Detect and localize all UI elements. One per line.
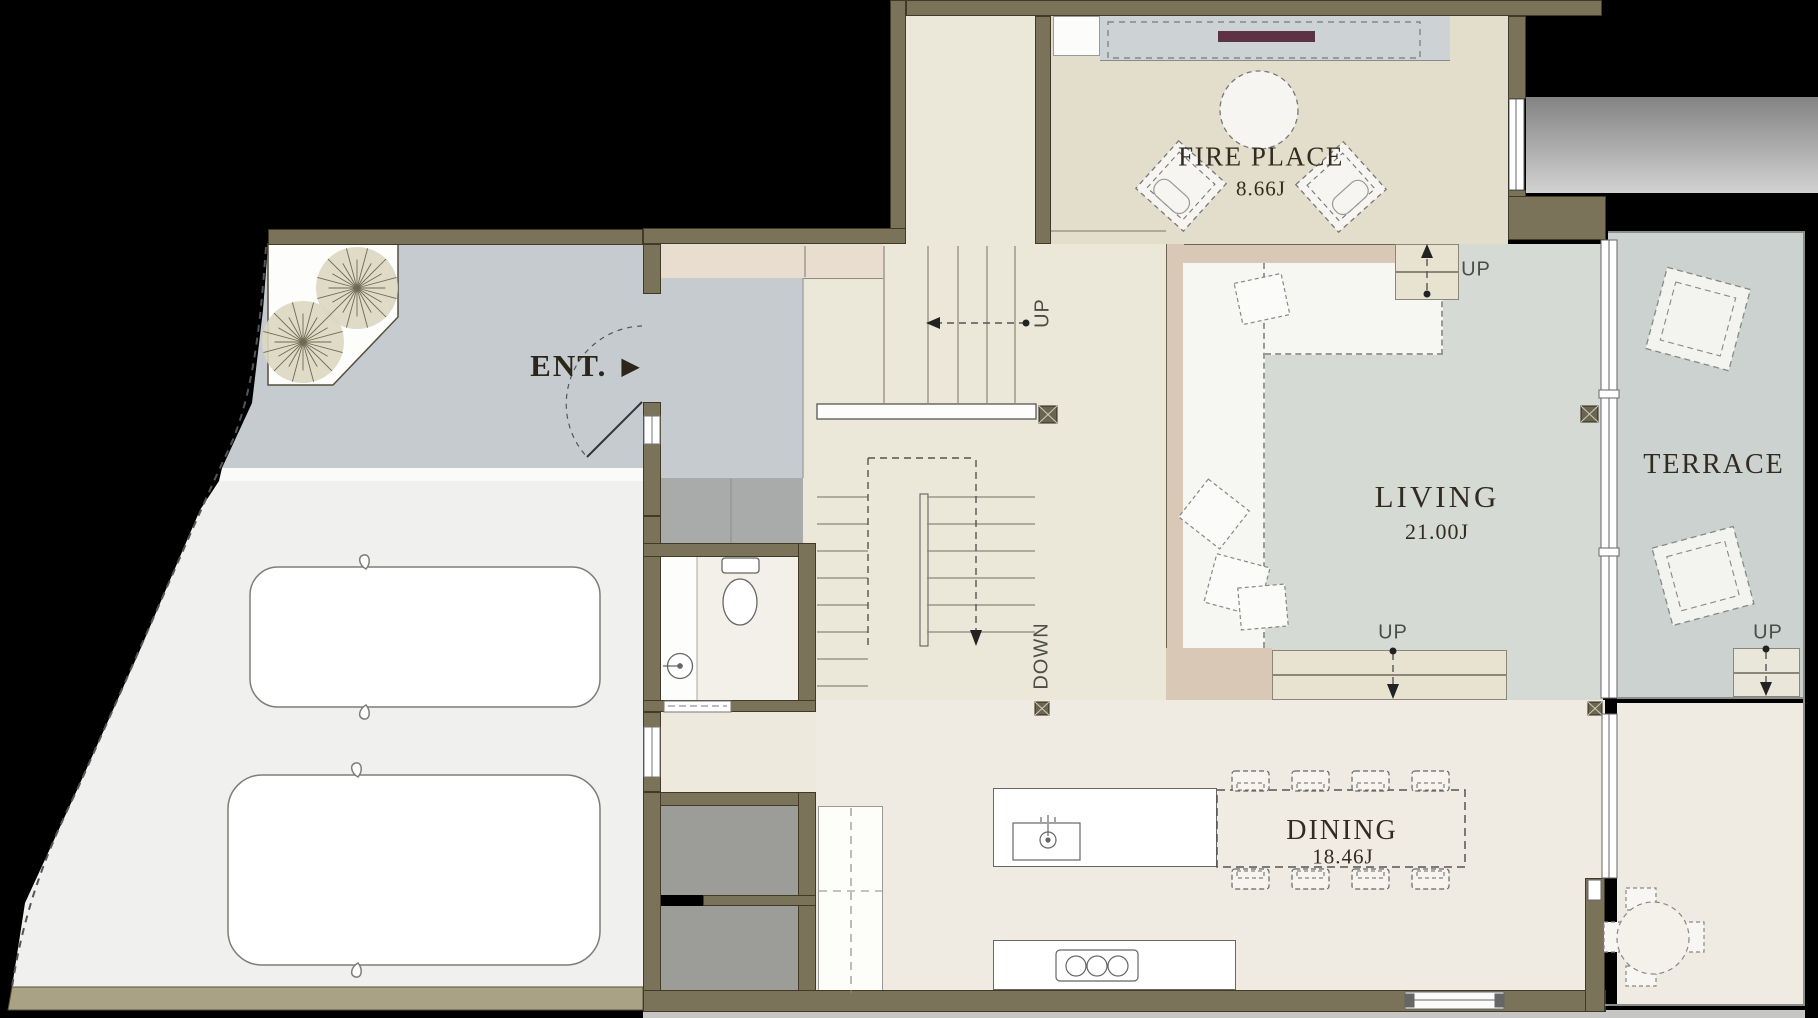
- entrance-arrow-icon: ▶: [621, 352, 639, 380]
- fireplace-step: [1395, 244, 1459, 272]
- kitchen-counter: [993, 940, 1236, 990]
- wall: [643, 792, 661, 994]
- wall: [906, 0, 1602, 16]
- entrance-label: ENT.: [530, 348, 607, 384]
- sofa-left: [1183, 263, 1265, 648]
- wall: [643, 543, 799, 557]
- entrance-label-row: ENT. ▶: [530, 348, 640, 384]
- dining-room-label: DINING: [1286, 815, 1398, 847]
- living-platform-frame-left: [1166, 244, 1184, 700]
- storage-room-b-floor: [661, 906, 798, 990]
- parking-area: [12, 481, 643, 987]
- site-edge-strip: [8, 987, 643, 1010]
- fireplace-room-area: 8.66J: [1236, 177, 1286, 202]
- dining-room-area: 18.46J: [1312, 845, 1373, 870]
- living-room-area: 21.00J: [1405, 519, 1469, 545]
- tree-icon: [262, 247, 398, 383]
- entry-step: [661, 478, 803, 545]
- wall: [890, 0, 906, 229]
- wall: [643, 228, 906, 244]
- wall: [798, 792, 816, 994]
- planting-bed: [268, 244, 398, 385]
- fireplace-room-label: FIRE PLACE: [1178, 142, 1344, 173]
- terrace-step: [1733, 673, 1800, 697]
- storage-room-a-floor: [661, 806, 798, 895]
- terrace-label: TERRACE: [1643, 449, 1785, 481]
- toilet-room-floor-strip: [661, 557, 697, 700]
- fireplace-step: [1395, 272, 1459, 300]
- wall: [1585, 878, 1605, 1012]
- wall: [643, 792, 816, 806]
- wall: [268, 229, 643, 245]
- kitchen-island: [993, 788, 1217, 867]
- wall: [643, 990, 1606, 1012]
- wall: [643, 700, 816, 712]
- entry-closet: [661, 244, 883, 279]
- door-swing-icon: [566, 326, 642, 458]
- wall: [643, 244, 661, 294]
- fireplace-up-label: UP: [1461, 259, 1491, 282]
- stair-down-label: DOWN: [1031, 622, 1054, 689]
- wall: [798, 543, 816, 712]
- entrance-opening: [643, 294, 661, 402]
- living-room-label: LIVING: [1375, 479, 1500, 515]
- stair-up-label: UP: [1032, 298, 1055, 328]
- living-step: [1272, 650, 1507, 675]
- wall: [643, 402, 661, 516]
- curb: [219, 468, 643, 481]
- site-boundary-line: [12, 247, 266, 987]
- stairhall-floor: [803, 244, 1166, 700]
- wall: [1508, 16, 1526, 99]
- wall: [643, 712, 661, 792]
- terrace-up-label: UP: [1753, 622, 1783, 645]
- stairhall-upper-floor: [906, 16, 1035, 244]
- fireplace-hearth: [1218, 31, 1315, 42]
- entrance-door-icon: [566, 326, 642, 458]
- living-up-label: UP: [1378, 622, 1408, 645]
- patio-floor: [1617, 703, 1805, 1005]
- wall: [1508, 196, 1606, 240]
- floor-plan-canvas: FIRE PLACE 8.66J LIVING 21.00J TERRACE D…: [0, 0, 1818, 1018]
- wall: [703, 895, 816, 906]
- roof-band: [1526, 97, 1818, 193]
- pantry-cabinet: [818, 806, 883, 995]
- west-corridor-floor: [661, 712, 819, 792]
- entry-hall-floor: [661, 278, 803, 478]
- fireplace-side-box: [1053, 16, 1100, 56]
- terrace-step: [1733, 648, 1800, 673]
- car-icon: [228, 555, 600, 977]
- living-platform-frame-bottom: [1166, 648, 1272, 700]
- wall: [1035, 16, 1051, 244]
- living-step: [1272, 675, 1507, 700]
